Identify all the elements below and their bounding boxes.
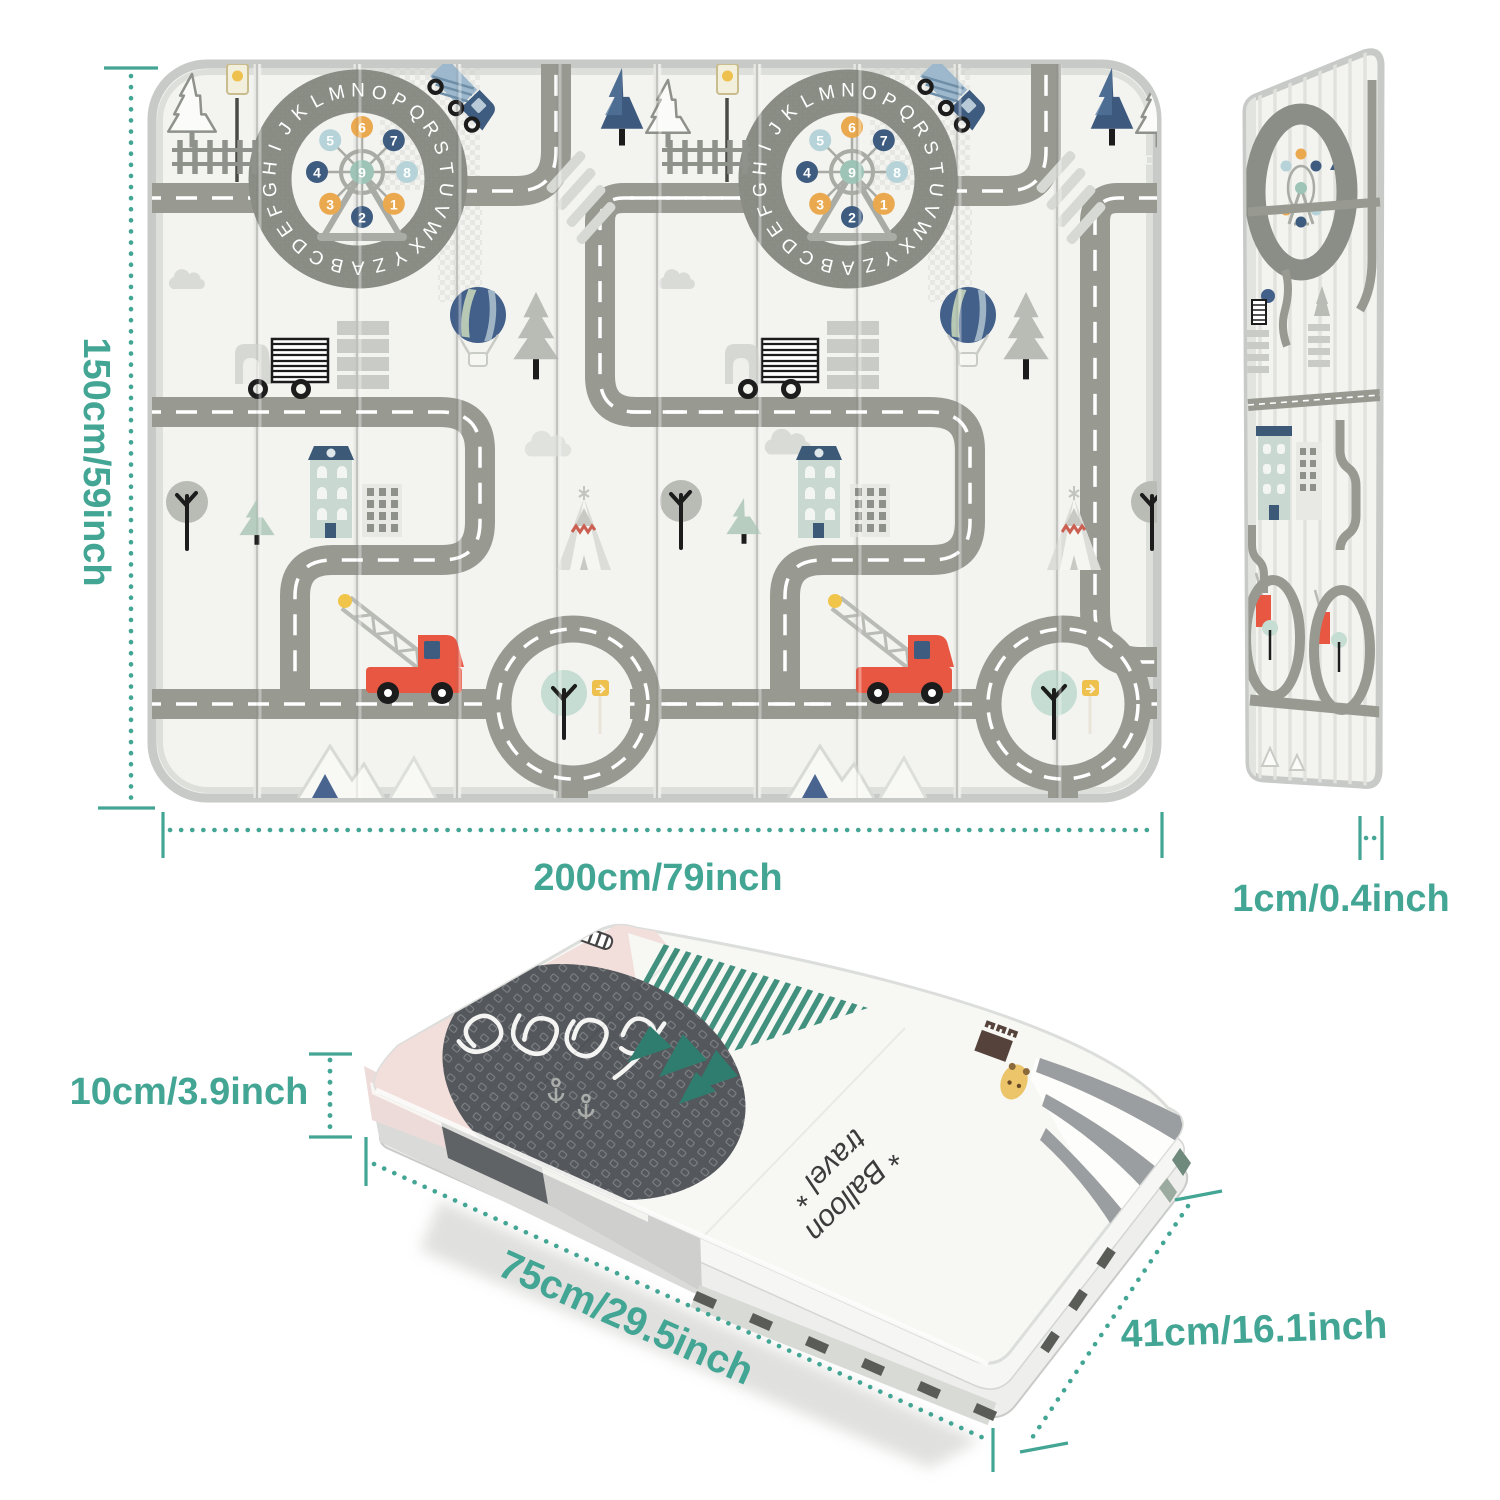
svg-text:U: U <box>434 182 456 198</box>
svg-text:200cm/79inch: 200cm/79inch <box>533 857 782 899</box>
svg-text:7: 7 <box>390 133 398 149</box>
svg-text:N: N <box>841 81 855 102</box>
svg-text:10cm/3.9inch: 10cm/3.9inch <box>70 1071 309 1113</box>
svg-text:150cm/59inch: 150cm/59inch <box>75 337 117 586</box>
svg-text:8: 8 <box>403 165 411 181</box>
svg-text:4: 4 <box>803 165 811 181</box>
svg-text:5: 5 <box>326 133 334 149</box>
svg-text:A: A <box>841 257 854 278</box>
svg-text:5: 5 <box>816 133 824 149</box>
svg-text:1: 1 <box>880 196 888 212</box>
svg-text:6: 6 <box>848 120 856 136</box>
svg-text:G: G <box>259 181 282 198</box>
svg-text:4: 4 <box>313 165 321 181</box>
svg-text:3: 3 <box>816 196 824 212</box>
svg-text:1cm/0.4inch: 1cm/0.4inch <box>1232 878 1450 920</box>
svg-text:7: 7 <box>880 133 888 149</box>
svg-text:H: H <box>1139 154 1156 166</box>
svg-text:3: 3 <box>326 196 334 212</box>
svg-text:9: 9 <box>848 165 856 181</box>
svg-text:H: H <box>259 160 281 176</box>
svg-text:1: 1 <box>390 196 398 212</box>
svg-text:2: 2 <box>848 210 856 226</box>
svg-text:U: U <box>924 182 946 198</box>
svg-text:8: 8 <box>893 165 901 181</box>
